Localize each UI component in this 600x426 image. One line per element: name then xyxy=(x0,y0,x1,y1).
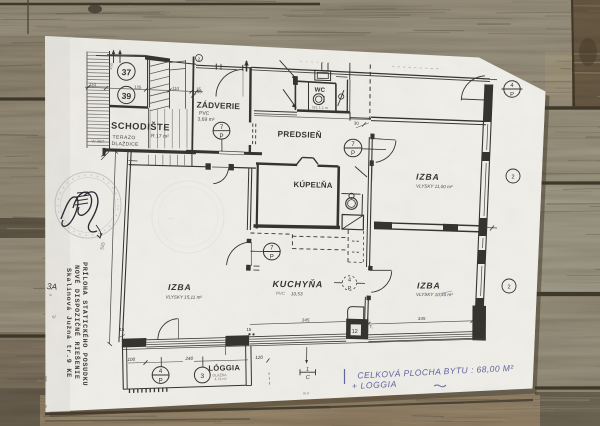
svg-text:WC: WC xyxy=(314,87,325,94)
svg-text:NOVÉ DISPOZIČNÉ RIEŠENIE: NOVÉ DISPOZIČNÉ RIEŠENIE xyxy=(72,265,82,380)
svg-text:VLYSKY 15,11 m²: VLYSKY 15,11 m² xyxy=(165,295,202,300)
svg-text:2: 2 xyxy=(198,56,201,62)
svg-text:IZBA: IZBA xyxy=(168,282,192,292)
svg-text:≡≡: ≡≡ xyxy=(42,376,48,382)
svg-text:125: 125 xyxy=(134,85,142,90)
svg-text:3A: 3A xyxy=(46,281,57,292)
svg-text:12: 12 xyxy=(352,329,358,335)
svg-text:120: 120 xyxy=(255,355,263,360)
svg-text:345: 345 xyxy=(302,318,310,323)
svg-text:15: 15 xyxy=(120,327,125,332)
svg-text:≡: ≡ xyxy=(42,405,48,408)
svg-text:ZÁDVERIE: ZÁDVERIE xyxy=(196,100,240,112)
svg-text:7,: 7, xyxy=(369,324,373,329)
svg-text:R 17 m²: R 17 m² xyxy=(151,133,169,140)
svg-text:240: 240 xyxy=(184,356,193,361)
svg-text:100: 100 xyxy=(127,357,135,362)
svg-text:KUCHYŇA: KUCHYŇA xyxy=(272,278,323,289)
svg-text:P: P xyxy=(219,134,223,140)
svg-text:PVC: PVC xyxy=(276,291,286,296)
svg-text:10,53: 10,53 xyxy=(291,291,303,296)
svg-text:W 3ET: W 3ET xyxy=(91,139,104,144)
svg-text:4,74 m²: 4,74 m² xyxy=(214,377,227,381)
svg-text:110: 110 xyxy=(172,86,180,91)
svg-text:VLYSKY 10,40 m²: VLYSKY 10,40 m² xyxy=(416,292,453,297)
svg-text:345: 345 xyxy=(418,316,426,321)
svg-text:Skalinová Južná tr.9 KE: Skalinová Južná tr.9 KE xyxy=(64,268,72,378)
svg-text:3: 3 xyxy=(200,373,204,380)
svg-text:30: 30 xyxy=(354,121,360,126)
svg-text:LÓGGIA: LÓGGIA xyxy=(208,363,240,373)
svg-text:IZBA: IZBA xyxy=(416,172,440,182)
svg-text:IZBA: IZBA xyxy=(417,281,441,291)
svg-text:VLYSKY 11,00 m²: VLYSKY 11,00 m² xyxy=(416,184,453,190)
svg-text:1: 1 xyxy=(306,367,309,373)
svg-text:P: P xyxy=(510,92,514,98)
svg-text:SCHODIŠTE: SCHODIŠTE xyxy=(111,120,170,133)
svg-text:WL 1,1 m: WL 1,1 m xyxy=(312,106,328,111)
svg-text:2: 2 xyxy=(507,285,510,291)
svg-text:~: ~ xyxy=(168,214,174,225)
svg-text:PRÍLOHA STATICKÉHO POSUDKU: PRÍLOHA STATICKÉHO POSUDKU xyxy=(80,262,89,386)
svg-text:P: P xyxy=(351,151,355,157)
svg-text:KÚPEĽŇA: KÚPEĽŇA xyxy=(293,180,332,190)
svg-text:P: P xyxy=(348,286,352,292)
svg-text:39: 39 xyxy=(121,91,131,101)
svg-text:15: 15 xyxy=(197,89,203,94)
svg-text:15: 15 xyxy=(247,327,252,332)
svg-text:110: 110 xyxy=(89,82,97,87)
svg-text:4: 4 xyxy=(348,277,351,283)
svg-text:37: 37 xyxy=(121,67,131,77)
svg-text:m.n: m.n xyxy=(303,391,309,395)
svg-text:3,69 m²: 3,69 m² xyxy=(197,117,215,124)
svg-text:P: P xyxy=(270,255,274,261)
svg-text:P: P xyxy=(159,378,163,384)
svg-text:2: 2 xyxy=(511,175,514,181)
